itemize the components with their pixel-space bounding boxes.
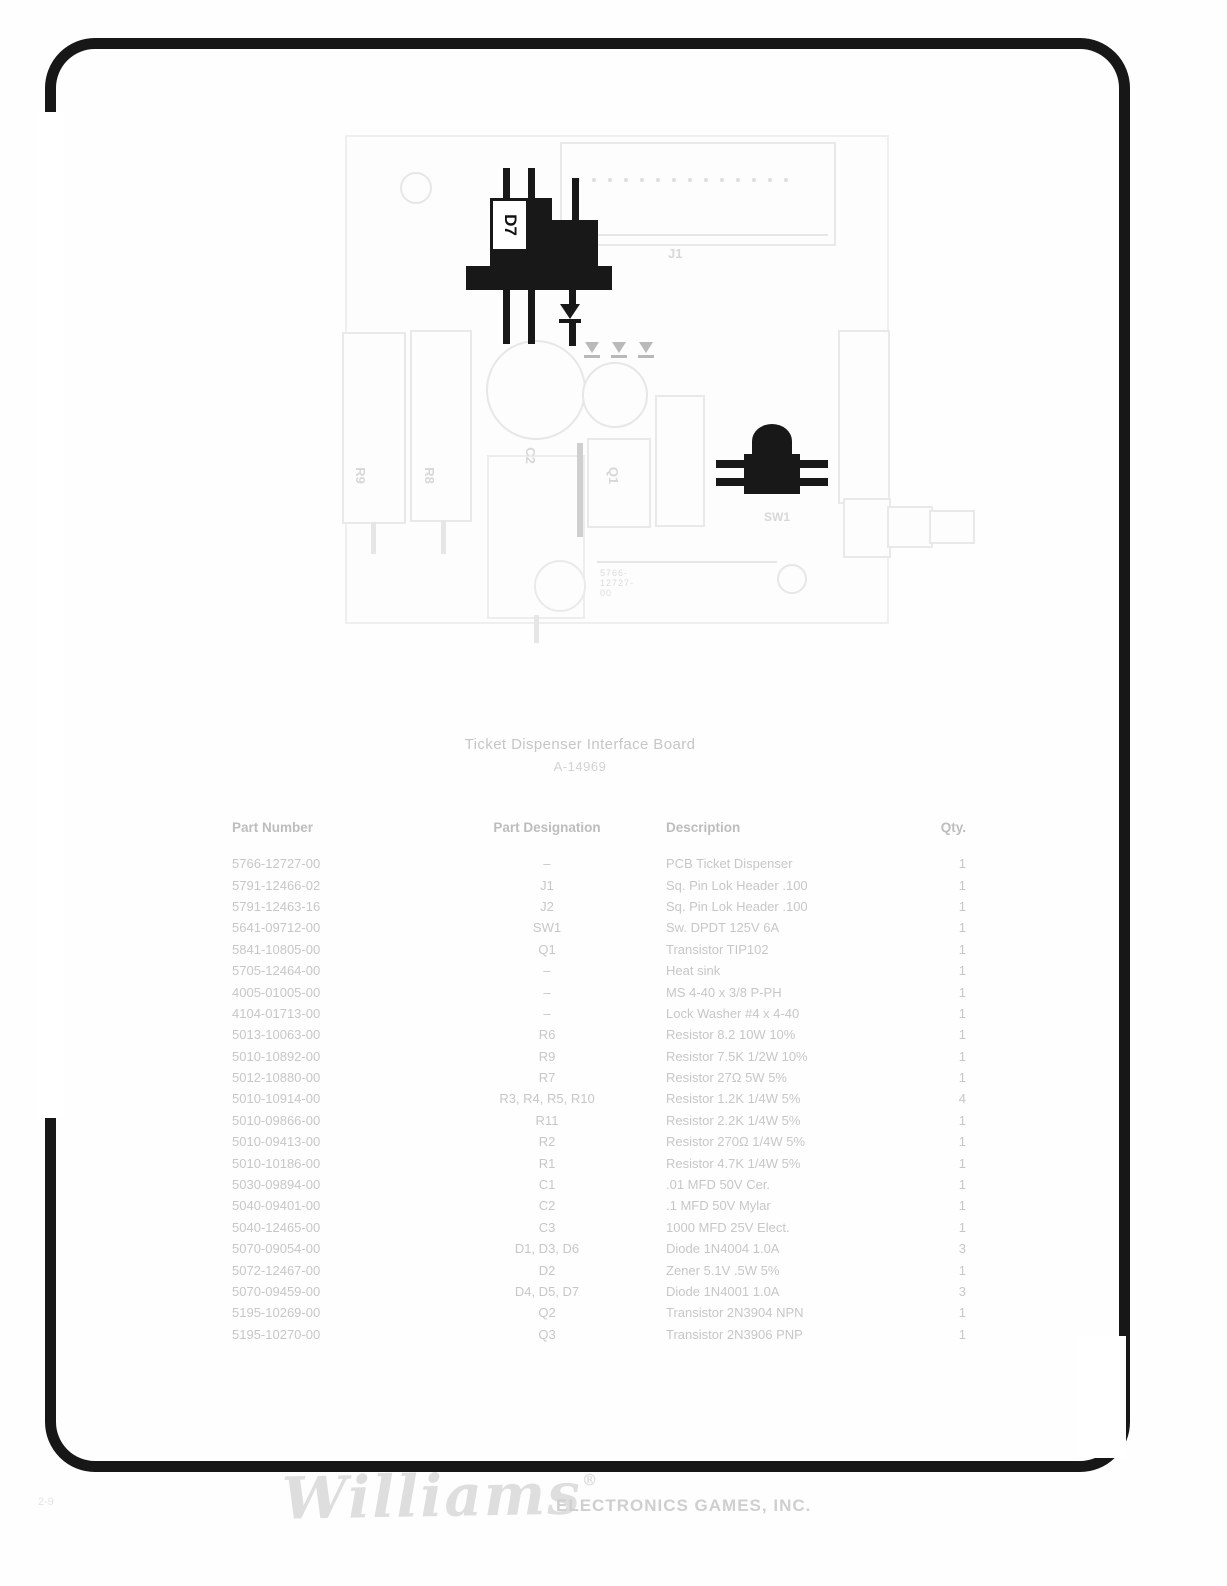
label-c2: C2: [523, 447, 538, 464]
cell-designation: Q3: [428, 1324, 666, 1345]
cell-part_number: 5841-10805-00: [232, 939, 428, 960]
scanned-manual-page: J1 R9 R8 C2 Q1 SW1: [0, 0, 1227, 1586]
cell-part_number: 4104-01713-00: [232, 1003, 428, 1024]
cell-description: Resistor 270Ω 1/4W 5%: [666, 1131, 926, 1152]
cell-description: 1000 MFD 25V Elect.: [666, 1217, 926, 1238]
parts-table-body: 5766-12727-00–PCB Ticket Dispenser15791-…: [232, 853, 966, 1345]
cell-designation: R11: [428, 1110, 666, 1131]
cell-description: Resistor 7.5K 1/2W 10%: [666, 1046, 926, 1067]
table-row: 5013-10063-00R6Resistor 8.2 10W 10%1: [232, 1024, 966, 1045]
parts-table: Part Number Part Designation Description…: [232, 820, 966, 1345]
cell-designation: R6: [428, 1024, 666, 1045]
cell-designation: C3: [428, 1217, 666, 1238]
mounting-hole-top-left: [400, 172, 432, 204]
cell-part_number: 5070-09459-00: [232, 1281, 428, 1302]
header-part-designation: Part Designation: [428, 820, 666, 853]
d7-pin-down-1: [503, 290, 510, 344]
cell-description: Sw. DPDT 125V 6A: [666, 917, 926, 938]
table-row: 5030-09894-00C1.01 MFD 50V Cer.1: [232, 1174, 966, 1195]
table-row: 5040-09401-00C2.1 MFD 50V Mylar1: [232, 1195, 966, 1216]
cell-designation: –: [428, 960, 666, 981]
cell-description: PCB Ticket Dispenser: [666, 853, 926, 874]
cell-part_number: 5010-10914-00: [232, 1088, 428, 1109]
d7-pin-up-1: [503, 168, 510, 200]
cell-part_number: 5072-12467-00: [232, 1259, 428, 1280]
table-row: 5791-12463-16J2Sq. Pin Lok Header .1001: [232, 896, 966, 917]
cell-qty: 1: [926, 1302, 966, 1323]
cell-qty: 1: [926, 1131, 966, 1152]
cell-description: Resistor 4.7K 1/4W 5%: [666, 1152, 926, 1173]
cell-part_number: 4005-01005-00: [232, 981, 428, 1002]
logo-subtitle: ELECTRONICS GAMES, INC.: [556, 1496, 811, 1516]
cell-description: .1 MFD 50V Mylar: [666, 1195, 926, 1216]
table-row: 5010-10914-00R3, R4, R5, R10Resistor 1.2…: [232, 1088, 966, 1109]
cell-designation: C1: [428, 1174, 666, 1195]
cell-qty: 1: [926, 1259, 966, 1280]
table-row: 5010-09866-00R11Resistor 2.2K 1/4W 5%1: [232, 1110, 966, 1131]
table-row: 5010-10892-00R9Resistor 7.5K 1/2W 10%1: [232, 1046, 966, 1067]
parts-table-head: Part Number Part Designation Description…: [232, 820, 966, 853]
table-row: 5070-09054-00D1, D3, D6Diode 1N4004 1.0A…: [232, 1238, 966, 1259]
frame-fade-left: [36, 112, 64, 1118]
title-block: Ticket Dispenser Interface Board A-14969: [330, 736, 830, 774]
capacitor-lead: [534, 615, 539, 643]
d7-pin-down-3: [569, 290, 576, 304]
cell-part_number: 5010-09413-00: [232, 1131, 428, 1152]
cell-designation: D2: [428, 1259, 666, 1280]
cell-qty: 1: [926, 1217, 966, 1238]
cell-designation: D4, D5, D7: [428, 1281, 666, 1302]
table-row: 5766-12727-00–PCB Ticket Dispenser1: [232, 853, 966, 874]
cell-description: Lock Washer #4 x 4-40: [666, 1003, 926, 1024]
cell-description: Resistor 8.2 10W 10%: [666, 1024, 926, 1045]
cell-designation: J2: [428, 896, 666, 917]
resistor-r8-lead: [441, 520, 446, 554]
connector-j1-edge: [562, 234, 828, 236]
transistor-pin-right-2: [800, 478, 828, 486]
dark-diode-symbol: [560, 304, 580, 319]
d7-pin-up-2: [528, 168, 535, 200]
cell-description: Zener 5.1V .5W 5%: [666, 1259, 926, 1280]
cell-qty: 1: [926, 939, 966, 960]
transistor-pin-left-1: [716, 460, 744, 468]
switch-sw1-arm-outer: [929, 510, 975, 544]
cell-designation: R2: [428, 1131, 666, 1152]
cell-part_number: 5030-09894-00: [232, 1174, 428, 1195]
table-row: 5012-10880-00R7Resistor 27Ω 5W 5%1: [232, 1067, 966, 1088]
header-part-number: Part Number: [232, 820, 428, 853]
header-description: Description: [666, 820, 926, 853]
cell-part_number: 5641-09712-00: [232, 917, 428, 938]
cell-qty: 1: [926, 1003, 966, 1024]
transistor-q1-circle: [582, 362, 648, 428]
label-r9: R9: [353, 467, 368, 484]
cell-designation: C2: [428, 1195, 666, 1216]
d7-pin-up-3: [572, 178, 579, 224]
label-d7: D7: [499, 214, 519, 236]
cell-description: Heat sink: [666, 960, 926, 981]
cell-part_number: 5040-12465-00: [232, 1217, 428, 1238]
cell-designation: –: [428, 1003, 666, 1024]
resistor-r9-lead: [371, 522, 376, 554]
table-row: 5195-10269-00Q2Transistor 2N3904 NPN1: [232, 1302, 966, 1323]
cell-designation: R3, R4, R5, R10: [428, 1088, 666, 1109]
mounting-hole-bottom-right: [777, 564, 807, 594]
header-qty: Qty.: [926, 820, 966, 853]
cell-description: Transistor 2N3904 NPN: [666, 1302, 926, 1323]
cell-description: Transistor TIP102: [666, 939, 926, 960]
diode-footprint-1-bar: [584, 355, 600, 358]
cell-designation: R1: [428, 1152, 666, 1173]
page-number: 2-9: [38, 1496, 54, 1508]
cell-qty: 1: [926, 960, 966, 981]
cell-part_number: 5010-10892-00: [232, 1046, 428, 1067]
table-row: 4104-01713-00–Lock Washer #4 x 4-401: [232, 1003, 966, 1024]
label-sw1: SW1: [764, 510, 790, 524]
switch-sw1-body: [843, 498, 891, 558]
cell-description: Resistor 1.2K 1/4W 5%: [666, 1088, 926, 1109]
table-row: 5705-12464-00–Heat sink1: [232, 960, 966, 981]
cell-designation: Q1: [428, 939, 666, 960]
table-row: 5010-09413-00R2Resistor 270Ω 1/4W 5%1: [232, 1131, 966, 1152]
cell-designation: R9: [428, 1046, 666, 1067]
cell-designation: –: [428, 981, 666, 1002]
cell-qty: 1: [926, 1110, 966, 1131]
cell-description: Transistor 2N3906 PNP: [666, 1324, 926, 1345]
cell-description: MS 4-40 x 3/8 P-PH: [666, 981, 926, 1002]
table-row: 5791-12466-02J1Sq. Pin Lok Header .1001: [232, 874, 966, 895]
component-rect-z1: [655, 395, 705, 527]
table-row: 5641-09712-00SW1Sw. DPDT 125V 6A1: [232, 917, 966, 938]
cell-qty: 1: [926, 853, 966, 874]
cell-part_number: 5012-10880-00: [232, 1067, 428, 1088]
diode-footprint-2-bar: [611, 355, 627, 358]
diode-footprint-2: [612, 342, 626, 353]
cell-part_number: 5010-09866-00: [232, 1110, 428, 1131]
table-row: 5195-10270-00Q3Transistor 2N3906 PNP1: [232, 1324, 966, 1345]
cell-qty: 1: [926, 917, 966, 938]
cell-part_number: 5195-10269-00: [232, 1302, 428, 1323]
cell-qty: 1: [926, 874, 966, 895]
cell-qty: 1: [926, 1152, 966, 1173]
connector-j1: [560, 142, 836, 246]
dark-transistor-body: [744, 454, 800, 494]
cell-part_number: 5791-12463-16: [232, 896, 428, 917]
cell-designation: –: [428, 853, 666, 874]
d7-label-plate: D7: [493, 201, 526, 249]
cell-qty: 4: [926, 1088, 966, 1109]
cell-qty: 1: [926, 1195, 966, 1216]
table-row: 5040-12465-00C31000 MFD 25V Elect.1: [232, 1217, 966, 1238]
diode-footprint-1: [585, 342, 599, 353]
cell-qty: 1: [926, 896, 966, 917]
table-row: 4005-01005-00–MS 4-40 x 3/8 P-PH1: [232, 981, 966, 1002]
cell-qty: 1: [926, 1024, 966, 1045]
page-title: Ticket Dispenser Interface Board: [330, 736, 830, 753]
cell-designation: SW1: [428, 917, 666, 938]
williams-logo-text: Williams: [281, 1460, 582, 1533]
resistor-r8-body: [410, 330, 472, 522]
resistor-r9-body: [342, 332, 406, 524]
board-number-silk: 5766-12727-00: [600, 568, 634, 598]
table-row: 5072-12467-00D2Zener 5.1V .5W 5%1: [232, 1259, 966, 1280]
cell-qty: 3: [926, 1281, 966, 1302]
cell-description: Resistor 27Ω 5W 5%: [666, 1067, 926, 1088]
cell-description: Sq. Pin Lok Header .100: [666, 896, 926, 917]
heatsink-streak: [577, 443, 583, 537]
cell-part_number: 5766-12727-00: [232, 853, 428, 874]
mounting-hole-bottom-left: [534, 560, 586, 612]
frame-fade-bottom-right: [1076, 1336, 1126, 1458]
switch-sw1-arm-inner: [887, 506, 933, 548]
cell-designation: J1: [428, 874, 666, 895]
cell-qty: 3: [926, 1238, 966, 1259]
cell-description: .01 MFD 50V Cer.: [666, 1174, 926, 1195]
cell-part_number: 5040-09401-00: [232, 1195, 428, 1216]
cell-qty: 1: [926, 1174, 966, 1195]
table-row: 5841-10805-00Q1Transistor TIP1021: [232, 939, 966, 960]
assembly-number: A-14969: [330, 759, 830, 774]
cell-part_number: 5791-12466-02: [232, 874, 428, 895]
cell-description: Resistor 2.2K 1/4W 5%: [666, 1110, 926, 1131]
dark-diode-lead: [569, 322, 576, 346]
transistor-pin-left-2: [716, 478, 744, 486]
cell-part_number: 5010-10186-00: [232, 1152, 428, 1173]
table-row: 5010-10186-00R1Resistor 4.7K 1/4W 5%1: [232, 1152, 966, 1173]
table-row: 5070-09459-00D4, D5, D7Diode 1N4001 1.0A…: [232, 1281, 966, 1302]
silk-line: [597, 561, 777, 563]
capacitor-c2-circle: [486, 340, 586, 440]
cell-designation: R7: [428, 1067, 666, 1088]
cell-qty: 1: [926, 1324, 966, 1345]
cell-qty: 1: [926, 981, 966, 1002]
d7-pin-down-2: [528, 290, 535, 344]
cell-part_number: 5070-09054-00: [232, 1238, 428, 1259]
dark-transistor-dome: [752, 424, 792, 458]
cell-description: Diode 1N4004 1.0A: [666, 1238, 926, 1259]
cell-description: Sq. Pin Lok Header .100: [666, 874, 926, 895]
cell-qty: 1: [926, 1067, 966, 1088]
label-r8: R8: [422, 467, 437, 484]
cell-part_number: 5705-12464-00: [232, 960, 428, 981]
diode-pack-band: [466, 266, 612, 290]
diode-footprint-3: [639, 342, 653, 353]
cell-part_number: 5195-10270-00: [232, 1324, 428, 1345]
cell-designation: D1, D3, D6: [428, 1238, 666, 1259]
transistor-pin-right-1: [800, 460, 828, 468]
connector-j2-body: [838, 330, 890, 504]
cell-part_number: 5013-10063-00: [232, 1024, 428, 1045]
connector-j1-pins: [576, 178, 788, 182]
registered-mark: ®: [581, 1470, 597, 1489]
diode-footprint-3-bar: [638, 355, 654, 358]
cell-designation: Q2: [428, 1302, 666, 1323]
williams-logo: Williams®: [281, 1459, 598, 1533]
cell-qty: 1: [926, 1046, 966, 1067]
cell-description: Diode 1N4001 1.0A: [666, 1281, 926, 1302]
header-row: Part Number Part Designation Description…: [232, 820, 966, 853]
label-j1: J1: [668, 246, 682, 261]
label-q1: Q1: [606, 467, 621, 484]
